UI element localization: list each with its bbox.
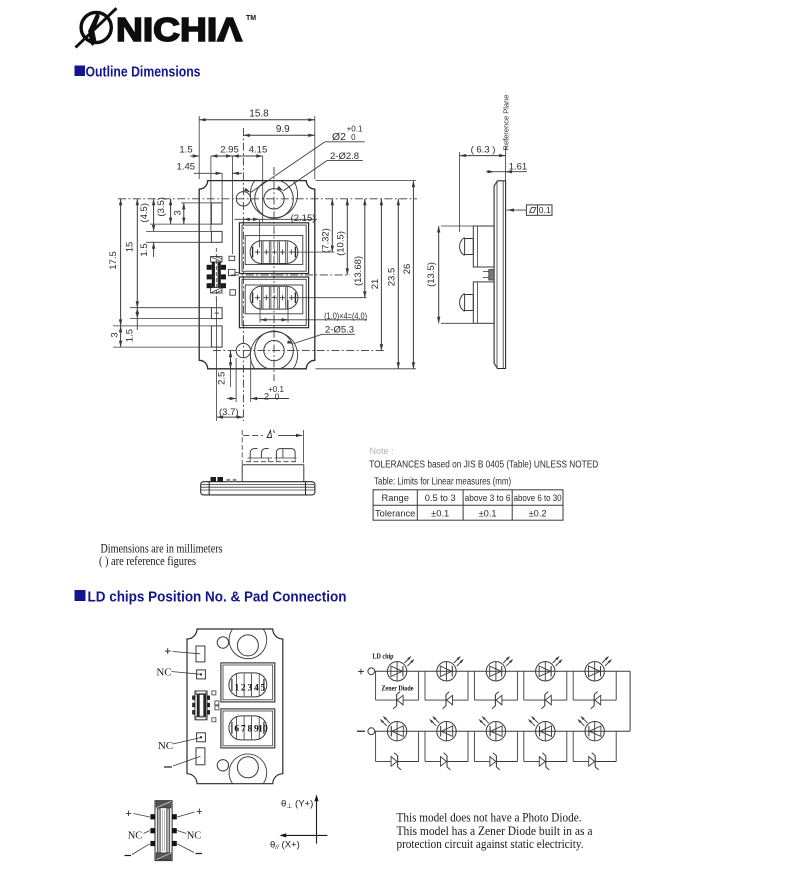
svg-text:TM: TM — [246, 15, 256, 22]
svg-text:Range: Range — [381, 493, 408, 503]
svg-text:(10.5): (10.5) — [336, 231, 347, 256]
svg-text:Outline Dimensions: Outline Dimensions — [86, 65, 201, 81]
svg-text:2.5: 2.5 — [216, 372, 227, 385]
svg-text:θ⊥ (Y+): θ⊥ (Y+) — [281, 799, 313, 811]
svg-text:Zener Diode: Zener Diode — [382, 684, 414, 693]
svg-text:15: 15 — [124, 242, 135, 253]
svg-text:(2.15): (2.15) — [291, 213, 316, 224]
svg-text:±0.1: ±0.1 — [431, 509, 449, 519]
svg-text:(3.7): (3.7) — [219, 407, 239, 418]
svg-text:above 3 to 6: above 3 to 6 — [465, 493, 511, 503]
svg-text:( ) are reference figures: ( ) are reference figures — [99, 554, 196, 568]
svg-text:1.5: 1.5 — [139, 243, 150, 256]
svg-text:+: + — [125, 808, 131, 820]
svg-text:23.5: 23.5 — [387, 268, 398, 287]
svg-text:3: 3 — [172, 210, 183, 215]
svg-text:NC: NC — [187, 831, 202, 842]
svg-text:21: 21 — [370, 279, 381, 290]
svg-text:TOLERANCES based on JIS B 0405: TOLERANCES based on JIS B 0405 (Table) U… — [369, 459, 598, 471]
svg-text:1.5: 1.5 — [125, 329, 136, 342]
svg-text:(13.5): (13.5) — [426, 262, 437, 287]
svg-text:( 6.3 ): ( 6.3 ) — [471, 145, 496, 156]
svg-text:17.5: 17.5 — [108, 251, 119, 270]
svg-text:Table: Limits for Linear measu: Table: Limits for Linear measures (mm) — [374, 477, 511, 488]
svg-text:4.15: 4.15 — [249, 145, 268, 156]
svg-text:+: + — [196, 806, 202, 818]
svg-text:1.5: 1.5 — [179, 145, 192, 156]
svg-text:LD chip: LD chip — [373, 652, 395, 661]
svg-text:3: 3 — [248, 684, 253, 694]
svg-text:2.95: 2.95 — [220, 145, 239, 156]
svg-text:8: 8 — [248, 725, 253, 735]
svg-text:6: 6 — [234, 725, 239, 735]
svg-text:4: 4 — [254, 684, 259, 694]
svg-text:LD chips Position No. & Pad Co: LD chips Position No. & Pad Connection — [88, 590, 347, 606]
svg-text:protection circuit against sta: protection circuit against static electr… — [397, 837, 584, 851]
svg-text:(13.68): (13.68) — [353, 256, 364, 286]
svg-text:0.1: 0.1 — [539, 205, 551, 215]
svg-text:θ// (X+): θ// (X+) — [270, 840, 300, 852]
svg-text:+: + — [357, 664, 364, 678]
svg-text:5: 5 — [261, 684, 266, 694]
svg-text:(7.32): (7.32) — [321, 228, 332, 253]
svg-text:Note :: Note : — [370, 446, 394, 456]
svg-text:Reference Plane: Reference Plane — [502, 95, 511, 151]
svg-text:+: + — [164, 644, 171, 658]
svg-text:Tolerance: Tolerance — [375, 509, 415, 519]
svg-text:This model does not have a Pho: This model does not have a Photo Diode. — [397, 811, 582, 825]
svg-text:This model has a Zener Diode b: This model has a Zener Diode built in as… — [397, 824, 594, 838]
svg-text:15.8: 15.8 — [249, 109, 269, 120]
svg-text:NC: NC — [158, 740, 173, 752]
svg-text:0: 0 — [351, 133, 356, 142]
svg-text:1.45: 1.45 — [177, 162, 196, 173]
svg-text:2: 2 — [264, 391, 269, 402]
svg-text:above 6 to 30: above 6 to 30 — [514, 493, 562, 503]
svg-text:(3.5): (3.5) — [156, 197, 167, 217]
svg-text:0: 0 — [275, 392, 280, 401]
svg-text:26: 26 — [402, 264, 413, 275]
svg-text:+0.1: +0.1 — [347, 125, 363, 134]
svg-text:±0.2: ±0.2 — [529, 509, 547, 519]
svg-text:0.5 to 3: 0.5 to 3 — [425, 493, 456, 503]
svg-text:9.9: 9.9 — [276, 124, 290, 135]
svg-text:1: 1 — [234, 684, 239, 694]
svg-text:(4.5): (4.5) — [139, 203, 150, 223]
svg-text:3: 3 — [110, 332, 121, 337]
svg-text:NICHIΛ: NICHIΛ — [116, 11, 242, 48]
svg-text:NC: NC — [128, 831, 143, 842]
svg-text:10: 10 — [258, 725, 268, 735]
svg-text:2: 2 — [241, 684, 246, 694]
svg-text:NC: NC — [156, 667, 171, 679]
svg-text:±0.1: ±0.1 — [479, 509, 497, 519]
svg-text:7: 7 — [241, 725, 246, 735]
svg-text:1.61: 1.61 — [509, 162, 528, 173]
svg-text:(1.0)×4=(4.0): (1.0)×4=(4.0) — [324, 311, 367, 321]
